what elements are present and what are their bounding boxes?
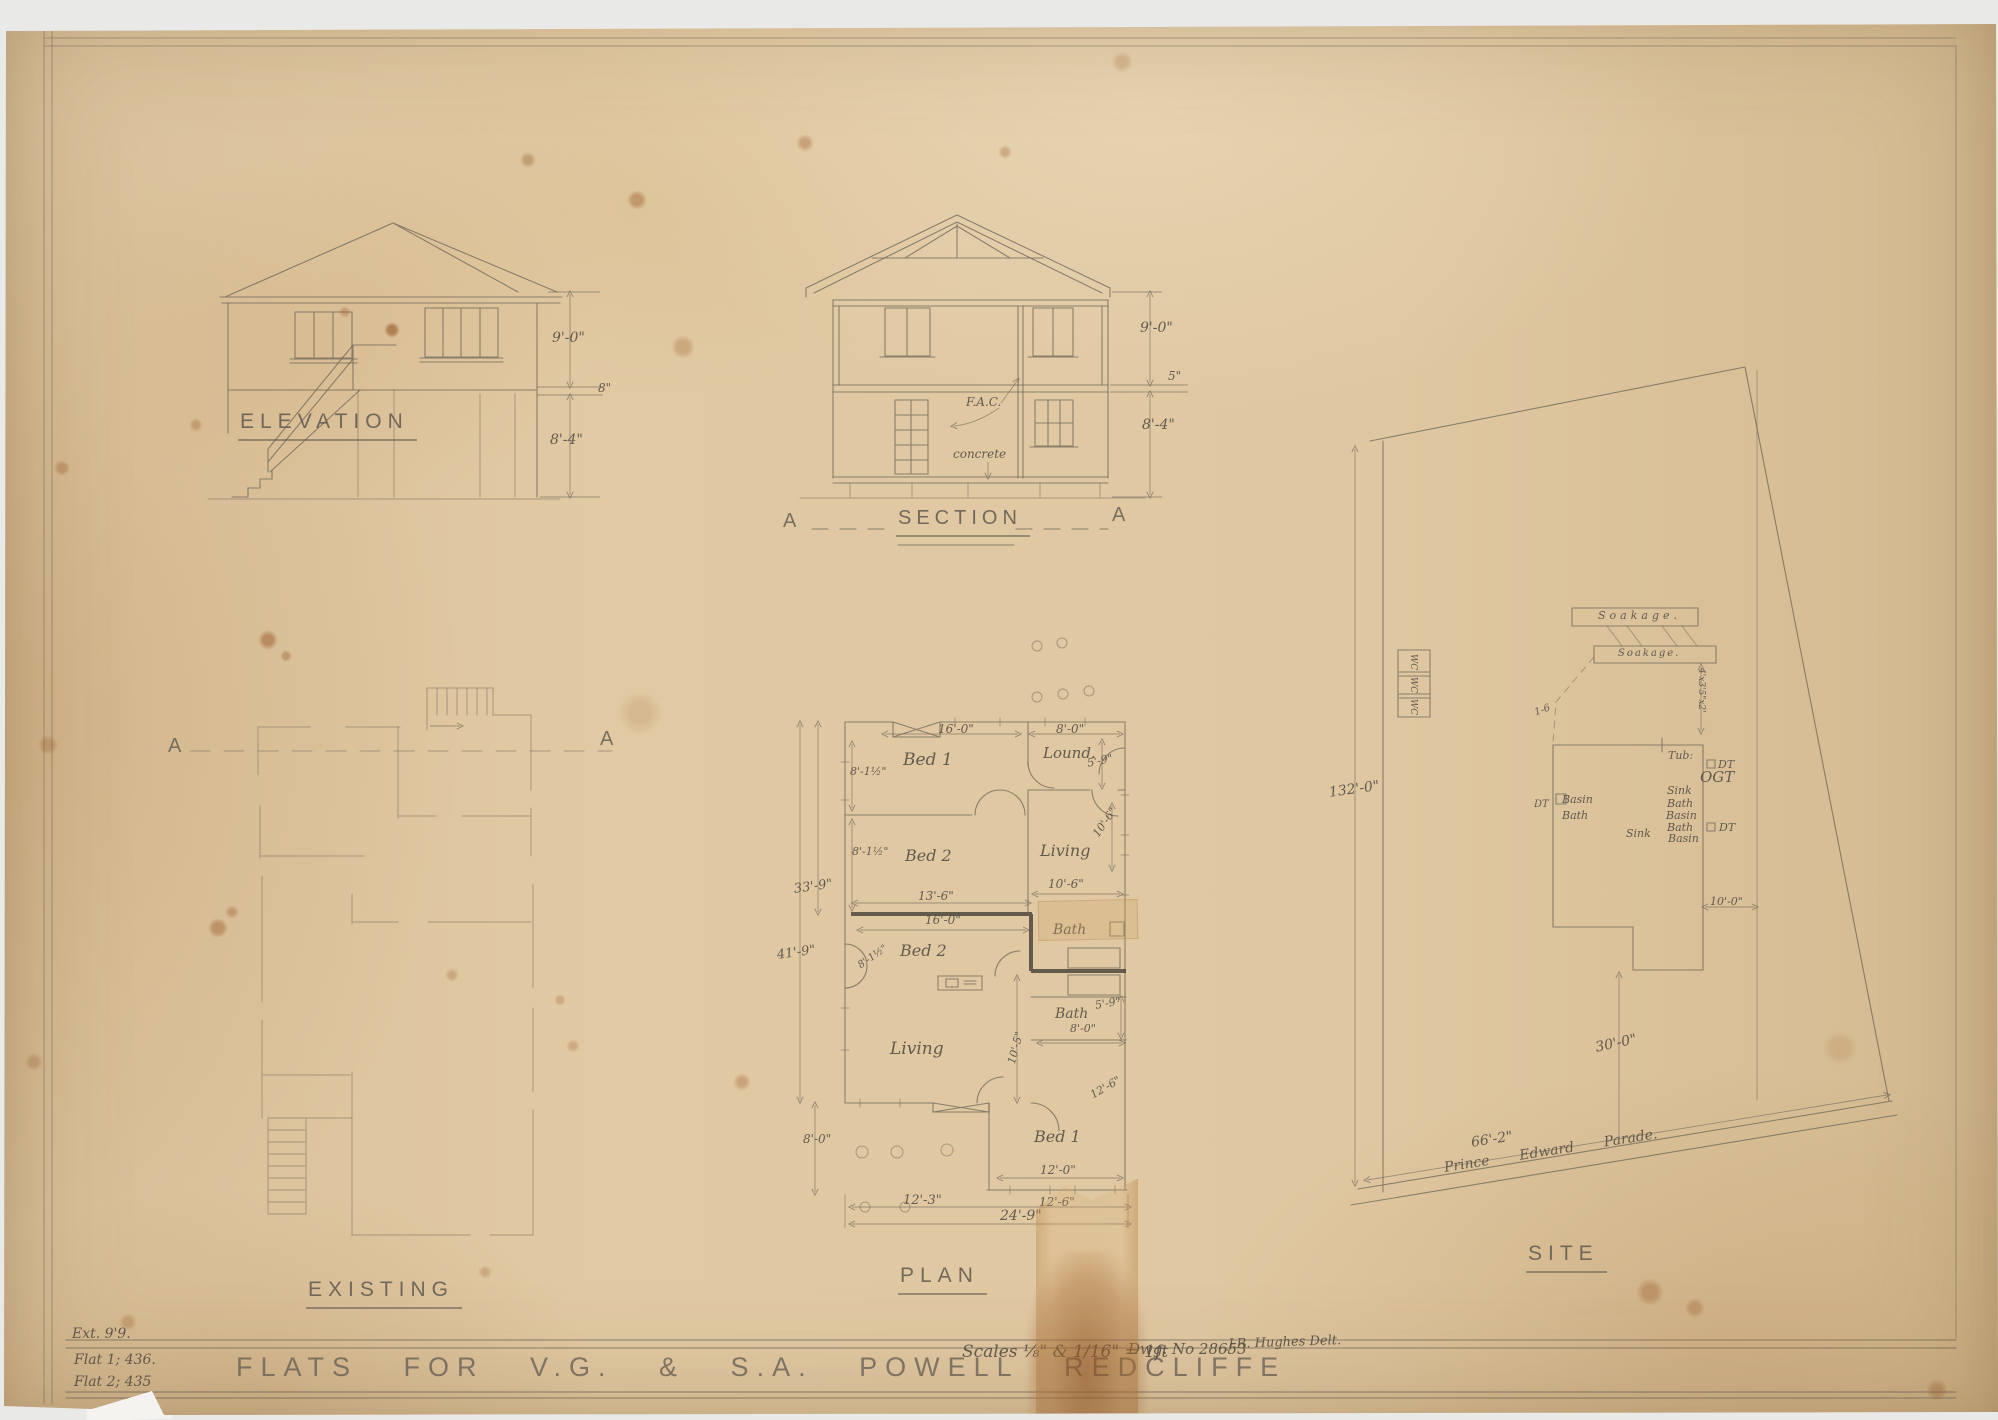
plan-dim-80b: 8'-0" — [1070, 1022, 1096, 1035]
section-title: SECTION — [896, 507, 1030, 537]
site-title: SITE — [1526, 1242, 1607, 1273]
site-fixture-dt2: DT — [1719, 821, 1735, 834]
plan-dim-120: 12'-0" — [1040, 1163, 1076, 1177]
site-plan-drawing — [1351, 367, 1897, 1205]
plan-room-living-top: Living — [1040, 841, 1090, 860]
plan-dim-80l: 8'-0" — [803, 1132, 831, 1146]
site-fixture-dt3: DT — [1534, 799, 1549, 810]
plan-dim-123: 12'-3" — [903, 1193, 942, 1208]
tape-stain — [1028, 1252, 1146, 1420]
plan-room-bed2-top: Bed 2 — [905, 846, 952, 865]
elevation-dim-band: 8" — [598, 381, 611, 395]
section-label-concrete: concrete — [953, 447, 1006, 461]
plan-dim-106b: 10'-6" — [1048, 877, 1084, 891]
plan-dim-16b: 16'-0" — [925, 913, 961, 927]
existing-title: EXISTING — [306, 1278, 462, 1309]
existing-marker-a-right: A — [600, 728, 613, 751]
section-marker-a-left: A — [783, 510, 796, 533]
site-fixture-basin3: Basin — [1562, 793, 1593, 806]
section-dim-band: 5" — [1168, 369, 1181, 383]
tape-patch-middle — [1038, 899, 1139, 941]
plan-dim-8: 8'-0" — [1056, 722, 1084, 736]
existing-plan-drawing — [190, 688, 612, 1235]
site-fixture-tub: Tub: — [1668, 749, 1693, 762]
elevation-title: ELEVATION — [238, 410, 417, 441]
tracing-paper: ELEVATION 9'-0" 8" 8'-4" A SECTION A F.A… — [0, 0, 1998, 1420]
section-marker-a-right: A — [1112, 504, 1125, 527]
plan-room-living-bot: Living — [890, 1039, 944, 1059]
site-fixture-basin2: Basin — [1668, 832, 1699, 845]
site-fixture-sink1: Sink — [1667, 784, 1692, 797]
site-soakage-1: Soakage. — [1598, 609, 1681, 622]
site-tank-dim: 4'x3'5"x2' — [1696, 668, 1706, 713]
margin-note-ext: Ext. 9'9. — [72, 1326, 131, 1342]
plan-dim-81b: 8'-1½" — [852, 845, 888, 858]
existing-marker-a-left: A — [168, 735, 181, 758]
elevation-drawing — [208, 223, 603, 499]
site-wc-label-2: WC — [1408, 677, 1418, 693]
plan-room-bath-mid: Bath — [1055, 1006, 1088, 1022]
margin-note-flat2: Flat 2; 435 — [74, 1374, 151, 1390]
plan-dim-249: 24'-9" — [1000, 1208, 1042, 1224]
plan-room-bed1-top: Bed 1 — [903, 750, 953, 770]
site-fixture-bath3: Bath — [1562, 809, 1588, 822]
site-fixture-ogt: OGT — [1700, 768, 1734, 786]
margin-note-flat1: Flat 1; 436. — [74, 1352, 156, 1368]
site-wc-label-3: WC — [1408, 699, 1418, 715]
section-dim-upper: 9'-0" — [1140, 320, 1173, 336]
site-dim-side: 10'-0" — [1710, 895, 1743, 908]
plan-dim-136: 13'-6" — [918, 889, 954, 903]
plan-dim-16a: 16'-0" — [938, 722, 974, 736]
site-soakage-2: Soakage. — [1618, 648, 1680, 659]
elevation-dim-upper: 9'-0" — [552, 330, 585, 346]
section-label-fac: F.A.C. — [966, 395, 1001, 409]
plan-dim-81a: 8'-1½" — [850, 765, 886, 778]
plan-title: PLAN — [898, 1264, 987, 1295]
scanned-drawing-sheet: ELEVATION 9'-0" 8" 8'-4" A SECTION A F.A… — [0, 0, 1998, 1420]
plan-room-bed1-bot: Bed 1 — [1034, 1127, 1081, 1146]
elevation-dim-lower: 8'-4" — [550, 432, 583, 448]
section-drawing — [800, 215, 1188, 545]
site-wc-label-1: WC — [1408, 654, 1418, 670]
plan-room-bed2-mid: Bed 2 — [900, 941, 947, 960]
section-dim-lower: 8'-4" — [1142, 417, 1175, 433]
site-fixture-sink2: Sink — [1626, 827, 1651, 840]
